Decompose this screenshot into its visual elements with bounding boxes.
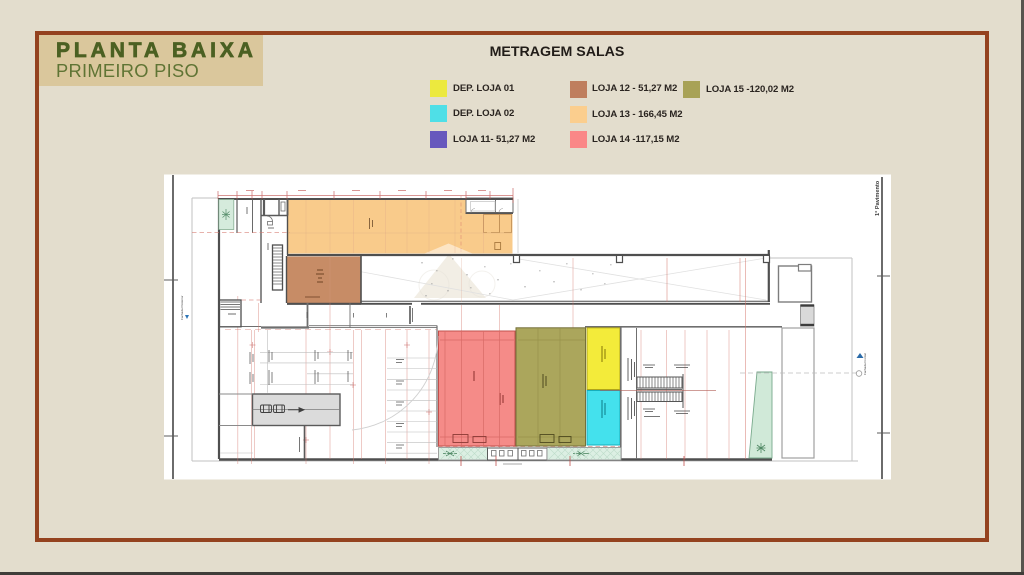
svg-text:Fachada Posterior: Fachada Posterior bbox=[180, 295, 184, 320]
svg-text:Fachada Frontal: Fachada Frontal bbox=[863, 353, 867, 375]
svg-text:1° Pavimento: 1° Pavimento bbox=[875, 180, 881, 216]
